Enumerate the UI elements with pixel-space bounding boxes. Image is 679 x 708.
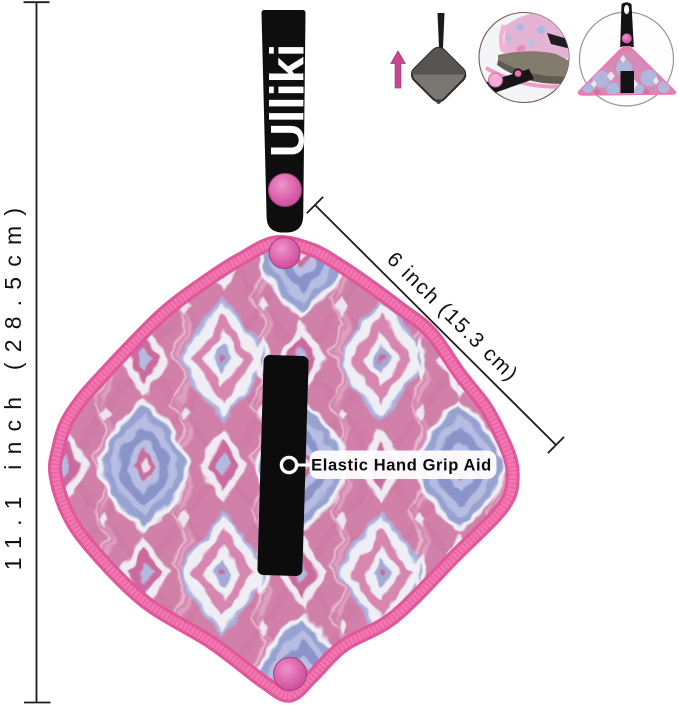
svg-text:Ulliki: Ulliki (262, 44, 315, 158)
svg-text:11.1 inch (28.5cm): 11.1 inch (28.5cm) (0, 198, 26, 570)
svg-text:Elastic Hand Grip Aid: Elastic Hand Grip Aid (311, 457, 492, 475)
